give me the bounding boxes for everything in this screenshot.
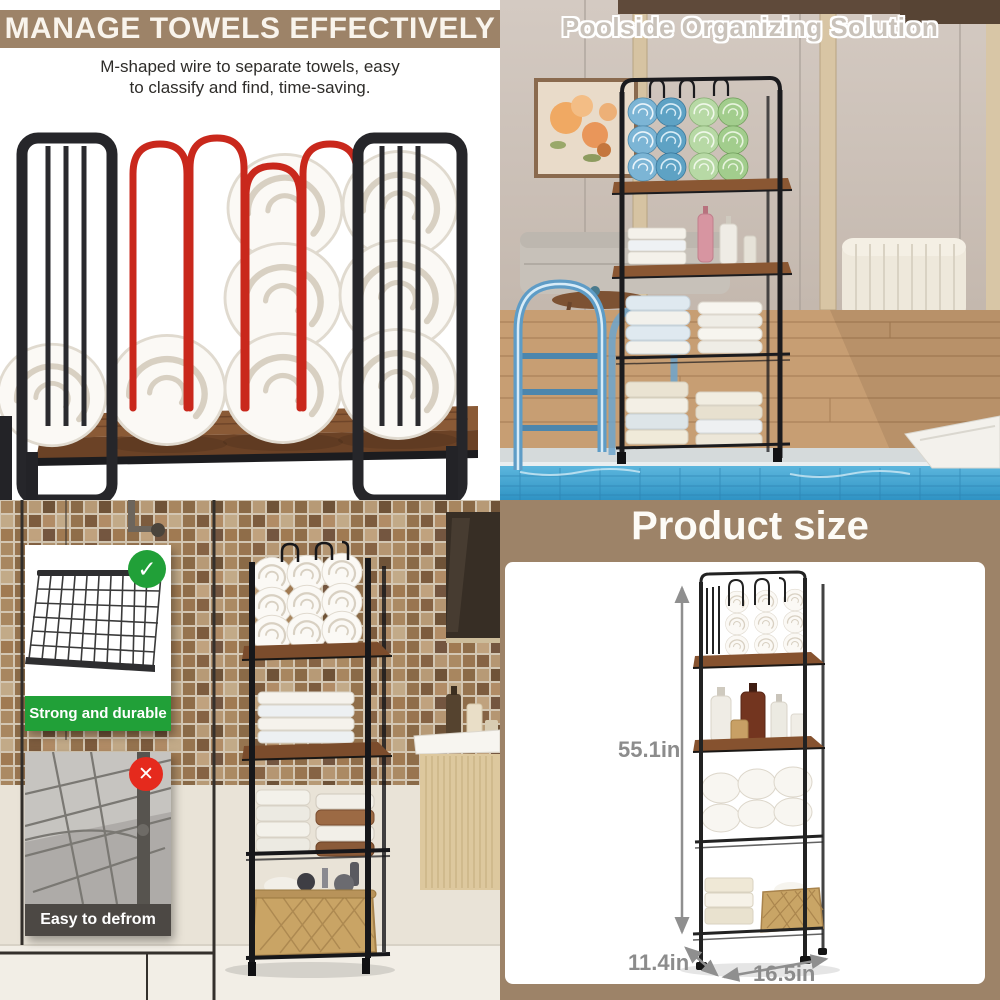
panel-product-size: Product size: [500, 500, 1000, 1000]
size-rolled-towels: [726, 589, 807, 657]
size-puffy-towels: [702, 767, 812, 832]
check-icon: ✓: [137, 556, 156, 583]
product-collage: MANAGE TOWELS EFFECTIVELY M-shaped wire …: [0, 0, 1000, 1000]
size-rack: [693, 572, 827, 970]
size-bottles: [711, 683, 805, 742]
width-dimension-label: 16.5in: [753, 962, 815, 986]
feature-description: M-shaped wire to separate towels, easy t…: [0, 56, 500, 98]
product-size-title: Product size: [500, 504, 1000, 549]
depth-dimension-label: 11.4in: [628, 951, 689, 975]
deform-inset-card: ✕ Easy to defrom: [25, 752, 171, 936]
mirror: [446, 512, 500, 643]
deform-caption: Easy to defrom: [25, 904, 171, 936]
durable-inset-card: ✓ Strong and durable: [25, 545, 171, 731]
panel-manage-towels: MANAGE TOWELS EFFECTIVELY M-shaped wire …: [0, 0, 500, 500]
durable-caption: Strong and durable: [25, 696, 171, 731]
towel-rack-closeup-illustration: [0, 100, 500, 500]
feature-description-line2: to classify and find, time-saving.: [130, 78, 371, 97]
cross-icon: ✕: [138, 763, 154, 786]
poolside-scene-illustration: [500, 0, 1000, 500]
manage-towels-title: MANAGE TOWELS EFFECTIVELY: [5, 12, 496, 45]
product-dimension-diagram: [505, 562, 985, 984]
manage-towels-banner: MANAGE TOWELS EFFECTIVELY: [0, 10, 500, 48]
product-size-card: [505, 562, 985, 984]
check-badge: ✓: [128, 550, 166, 588]
panel-bathroom: ✓ Strong and durable ✕ Easy to defrom: [0, 500, 500, 1000]
poolside-title: Poolside Organizing Solution: [500, 12, 1000, 43]
rolled-towels: [0, 151, 457, 445]
cross-badge: ✕: [129, 757, 163, 791]
folded-white-towels: [258, 692, 354, 743]
panel-poolside: Poolside Organizing Solution: [500, 0, 1000, 500]
rolled-white-towels: [252, 553, 362, 653]
feature-description-line1: M-shaped wire to separate towels, easy: [100, 57, 400, 76]
ottoman: [842, 238, 966, 322]
height-dimension-label: 55.1in: [618, 738, 680, 762]
